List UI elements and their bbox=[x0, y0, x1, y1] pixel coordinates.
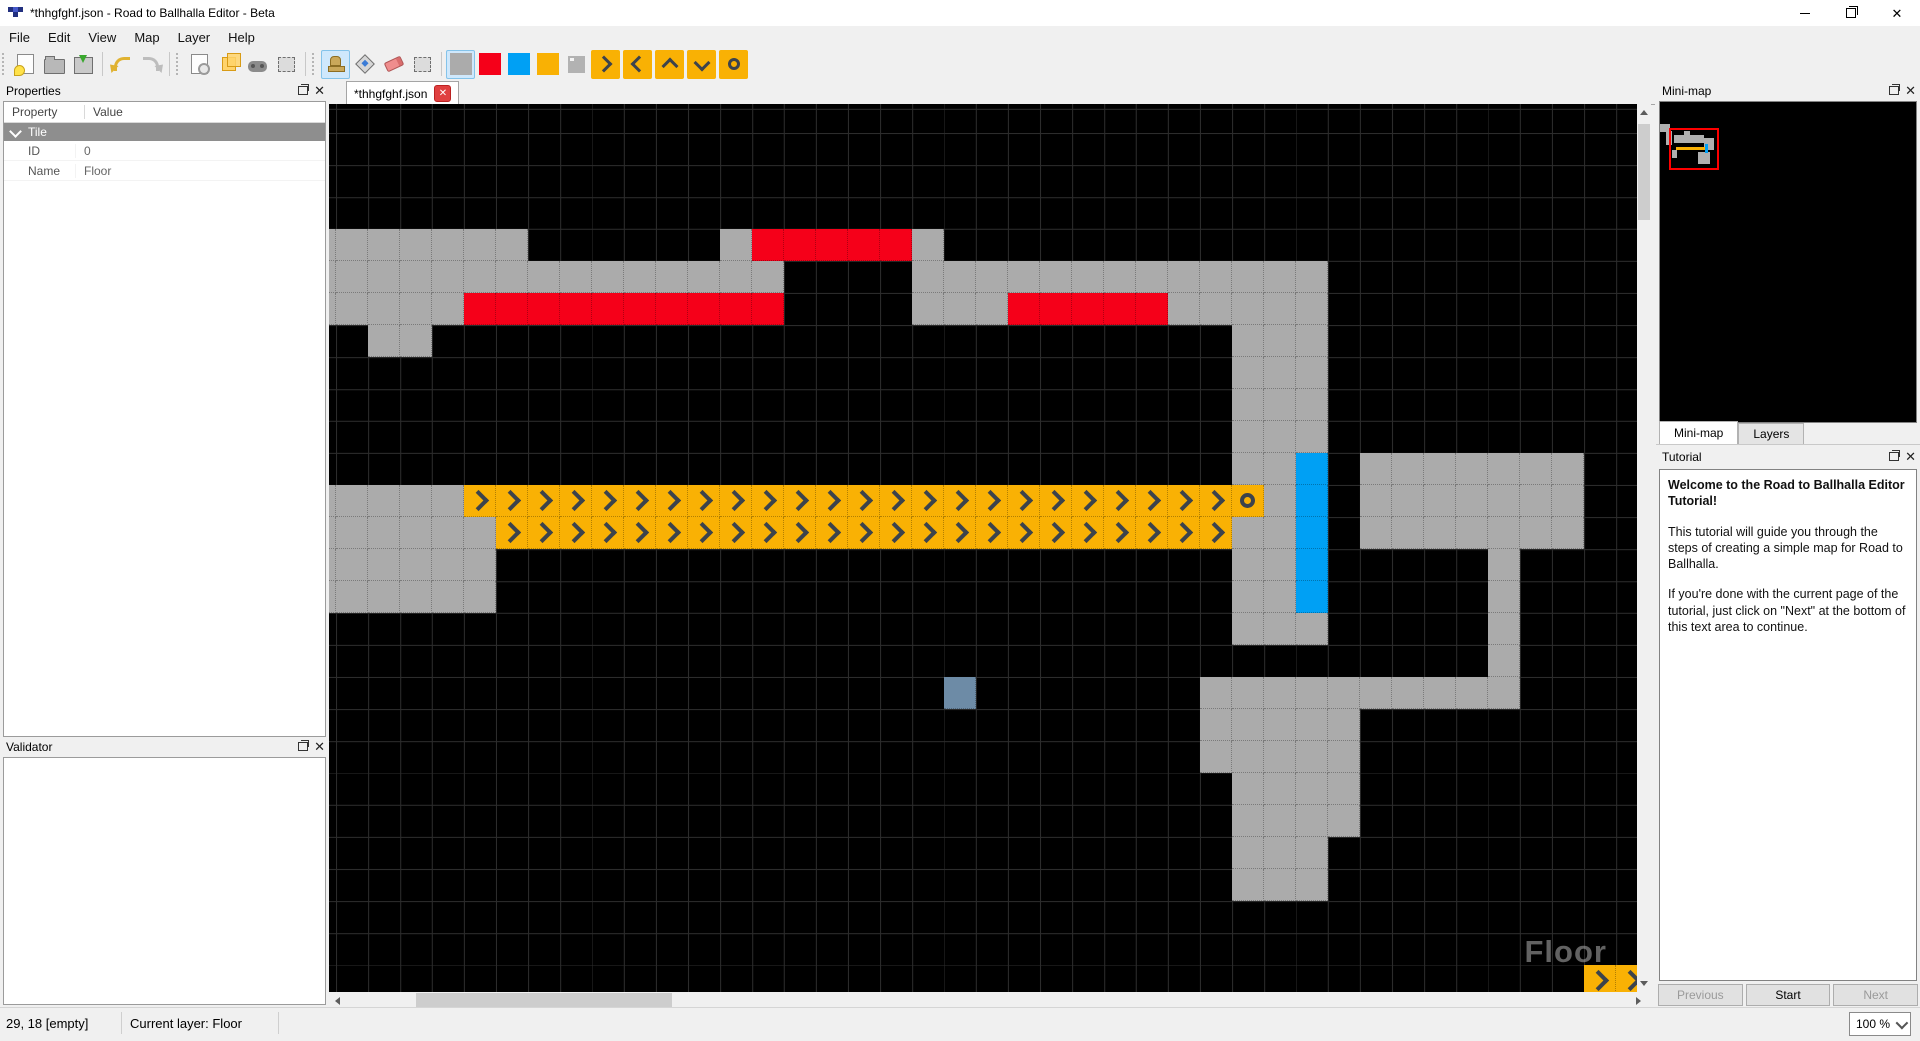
floor-tile[interactable] bbox=[368, 325, 400, 357]
floor-tile[interactable] bbox=[1488, 517, 1520, 549]
floor-tile[interactable] bbox=[944, 261, 976, 293]
arrow-right-tile[interactable] bbox=[592, 517, 624, 549]
floor-tile[interactable] bbox=[1296, 709, 1328, 741]
vertical-scroll-thumb[interactable] bbox=[1638, 124, 1650, 220]
hazard-tile[interactable] bbox=[688, 293, 720, 325]
floor-tile[interactable] bbox=[1296, 613, 1328, 645]
start-button[interactable]: Start bbox=[1746, 984, 1831, 1006]
arrow-left-tile[interactable] bbox=[623, 50, 652, 79]
floor-tile[interactable] bbox=[400, 261, 432, 293]
floor-tile[interactable] bbox=[329, 581, 336, 613]
floor-tile[interactable] bbox=[1264, 741, 1296, 773]
hazard-tile[interactable] bbox=[592, 293, 624, 325]
arrow-right-tile[interactable] bbox=[880, 517, 912, 549]
floor-tile[interactable] bbox=[1296, 421, 1328, 453]
floor-tile[interactable] bbox=[1232, 421, 1264, 453]
arrow-right-tile[interactable] bbox=[944, 517, 976, 549]
hazard-tile[interactable] bbox=[720, 293, 752, 325]
arrow-right-tile[interactable] bbox=[656, 517, 688, 549]
floor-tile[interactable] bbox=[336, 485, 368, 517]
floor-tile[interactable] bbox=[1296, 677, 1328, 709]
hazard-tile[interactable] bbox=[1104, 293, 1136, 325]
floor-tile[interactable] bbox=[1456, 677, 1488, 709]
floor-tile[interactable] bbox=[400, 293, 432, 325]
water-tile[interactable] bbox=[1296, 581, 1328, 613]
tutorial-text: Welcome to the Road to Ballhalla Editor … bbox=[1659, 469, 1917, 981]
arrow-down-tile[interactable] bbox=[687, 50, 716, 79]
floor-tile[interactable] bbox=[368, 229, 400, 261]
select-region-icon[interactable] bbox=[272, 50, 301, 79]
floor-tile[interactable] bbox=[912, 261, 944, 293]
floor-tile[interactable] bbox=[592, 261, 624, 293]
arrow-up-tile[interactable] bbox=[655, 50, 684, 79]
floor-tile[interactable] bbox=[976, 261, 1008, 293]
floor-tile[interactable] bbox=[1456, 517, 1488, 549]
floor-tile[interactable] bbox=[496, 229, 528, 261]
floor-tile[interactable] bbox=[1008, 261, 1040, 293]
circle-tile[interactable] bbox=[719, 50, 748, 79]
floor-tile[interactable] bbox=[464, 517, 496, 549]
floor-tile[interactable] bbox=[1232, 453, 1264, 485]
floor-tile[interactable] bbox=[1424, 677, 1456, 709]
arrow-right-tile[interactable] bbox=[1008, 517, 1040, 549]
tile-layers-icon[interactable] bbox=[214, 50, 243, 79]
floor-tile[interactable] bbox=[1392, 517, 1424, 549]
floor-tile[interactable] bbox=[329, 293, 336, 325]
hazard-tile[interactable] bbox=[1008, 293, 1040, 325]
floor-tile[interactable] bbox=[1232, 549, 1264, 581]
empty-tile-swatch[interactable] bbox=[562, 50, 591, 79]
floor-tile[interactable] bbox=[432, 549, 464, 581]
floor-tile[interactable] bbox=[1328, 709, 1360, 741]
floor-tile[interactable] bbox=[368, 293, 400, 325]
floor-tile[interactable] bbox=[1264, 613, 1296, 645]
arrow-right-tile[interactable] bbox=[1072, 517, 1104, 549]
floor-tile[interactable] bbox=[624, 261, 656, 293]
scroll-down-button[interactable] bbox=[1637, 975, 1651, 992]
arrow-right-tile[interactable] bbox=[976, 517, 1008, 549]
floor-tile[interactable] bbox=[1552, 485, 1584, 517]
floor-tile[interactable] bbox=[912, 229, 944, 261]
floor-tile[interactable] bbox=[1264, 677, 1296, 709]
floor-tile[interactable] bbox=[1296, 293, 1328, 325]
hazard-tile[interactable] bbox=[464, 293, 496, 325]
arrow-right-tile[interactable] bbox=[1136, 517, 1168, 549]
floor-tile[interactable] bbox=[336, 293, 368, 325]
floor-tile[interactable] bbox=[1296, 837, 1328, 869]
arrow-right-tile[interactable] bbox=[591, 50, 620, 79]
arrow-right-tile[interactable] bbox=[784, 517, 816, 549]
arrow-right-tile[interactable] bbox=[912, 485, 944, 517]
floor-tile[interactable] bbox=[400, 581, 432, 613]
arrow-right-tile[interactable] bbox=[624, 485, 656, 517]
floor-tile[interactable] bbox=[400, 229, 432, 261]
floor-tile[interactable] bbox=[1360, 453, 1392, 485]
floor-tile[interactable] bbox=[656, 261, 688, 293]
stamp-tool-icon[interactable] bbox=[321, 50, 350, 79]
arrow-right-tile[interactable] bbox=[1040, 485, 1072, 517]
map-canvas[interactable]: Floor bbox=[329, 104, 1637, 992]
arrow-right-tile[interactable] bbox=[816, 517, 848, 549]
floor-tile[interactable] bbox=[464, 229, 496, 261]
floor-tile[interactable] bbox=[1200, 741, 1232, 773]
arrow-right-tile[interactable] bbox=[912, 517, 944, 549]
float-panel-icon[interactable] bbox=[298, 86, 308, 95]
floor-tile[interactable] bbox=[1264, 389, 1296, 421]
arrow-right-tile[interactable] bbox=[592, 485, 624, 517]
floor-tile[interactable] bbox=[1264, 549, 1296, 581]
floor-tile[interactable] bbox=[752, 261, 784, 293]
floor-tile[interactable] bbox=[1520, 485, 1552, 517]
test-map-icon[interactable] bbox=[243, 50, 272, 79]
hazard-tile[interactable] bbox=[624, 293, 656, 325]
rect-select-icon[interactable] bbox=[408, 50, 437, 79]
next-button[interactable]: Next bbox=[1833, 984, 1918, 1006]
close-panel-icon[interactable]: ✕ bbox=[1905, 84, 1916, 97]
redo-icon[interactable] bbox=[136, 50, 165, 79]
hazard-tile[interactable] bbox=[656, 293, 688, 325]
toolbar-drag-handle[interactable] bbox=[2, 53, 9, 75]
floor-tile[interactable] bbox=[1488, 677, 1520, 709]
floor-tile[interactable] bbox=[1040, 261, 1072, 293]
floor-tile[interactable] bbox=[1200, 261, 1232, 293]
eraser-tool-icon[interactable] bbox=[379, 50, 408, 79]
floor-tile[interactable] bbox=[1264, 709, 1296, 741]
toolbar-drag-handle[interactable] bbox=[312, 53, 319, 75]
floor-tile[interactable] bbox=[368, 549, 400, 581]
floor-tile[interactable] bbox=[432, 485, 464, 517]
arrow-right-tile[interactable] bbox=[1136, 485, 1168, 517]
floor-tile[interactable] bbox=[1424, 517, 1456, 549]
floor-tile[interactable] bbox=[1232, 357, 1264, 389]
tab-minimap[interactable]: Mini-map bbox=[1659, 421, 1738, 444]
floor-tile[interactable] bbox=[1232, 325, 1264, 357]
floor-tile[interactable] bbox=[1232, 837, 1264, 869]
property-value[interactable]: Floor bbox=[76, 164, 111, 178]
hazard-tile[interactable] bbox=[880, 229, 912, 261]
floor-tile[interactable] bbox=[1328, 805, 1360, 837]
floor-tile[interactable] bbox=[329, 517, 336, 549]
toolbar-drag-handle[interactable] bbox=[176, 53, 183, 75]
goal-circle-tile[interactable] bbox=[1232, 485, 1264, 517]
property-group-row[interactable]: Tile bbox=[4, 123, 325, 141]
arrow-right-tile[interactable] bbox=[1104, 485, 1136, 517]
floor-tile[interactable] bbox=[336, 261, 368, 293]
floor-tile[interactable] bbox=[1264, 837, 1296, 869]
arrow-right-tile[interactable] bbox=[1616, 965, 1637, 992]
floor-tile[interactable] bbox=[368, 485, 400, 517]
floor-tile[interactable] bbox=[432, 229, 464, 261]
save-file-icon[interactable] bbox=[69, 50, 98, 79]
arrow-right-tile[interactable] bbox=[624, 517, 656, 549]
floor-tile[interactable] bbox=[1456, 485, 1488, 517]
restore-button[interactable] bbox=[1828, 0, 1874, 26]
floor-tile[interactable] bbox=[432, 261, 464, 293]
floor-tile[interactable] bbox=[1488, 453, 1520, 485]
hazard-tile[interactable] bbox=[848, 229, 880, 261]
floor-tile[interactable] bbox=[464, 581, 496, 613]
menu-edit[interactable]: Edit bbox=[39, 27, 79, 48]
menu-map[interactable]: Map bbox=[125, 27, 168, 48]
hazard-tile[interactable] bbox=[528, 293, 560, 325]
floor-tile[interactable] bbox=[368, 517, 400, 549]
menu-help[interactable]: Help bbox=[219, 27, 264, 48]
close-panel-icon[interactable]: ✕ bbox=[1905, 450, 1916, 463]
floor-tile[interactable] bbox=[329, 261, 336, 293]
floor-tile[interactable] bbox=[1232, 517, 1264, 549]
floor-tile[interactable] bbox=[432, 581, 464, 613]
tab-layers[interactable]: Layers bbox=[1738, 423, 1804, 444]
floor-tile[interactable] bbox=[329, 485, 336, 517]
arrow-right-tile[interactable] bbox=[1104, 517, 1136, 549]
floor-tile[interactable] bbox=[1168, 293, 1200, 325]
floor-tile[interactable] bbox=[1264, 261, 1296, 293]
arrow-right-tile[interactable] bbox=[528, 517, 560, 549]
arrow-right-tile[interactable] bbox=[656, 485, 688, 517]
floor-tile[interactable] bbox=[1424, 453, 1456, 485]
floor-tile[interactable] bbox=[1232, 869, 1264, 901]
floor-tile[interactable] bbox=[1264, 357, 1296, 389]
floor-tile[interactable] bbox=[1360, 517, 1392, 549]
arrow-right-tile[interactable] bbox=[944, 485, 976, 517]
floor-tile[interactable] bbox=[1296, 869, 1328, 901]
floor-tile[interactable] bbox=[1232, 773, 1264, 805]
floor-tile[interactable] bbox=[720, 261, 752, 293]
arrow-right-tile[interactable] bbox=[1168, 485, 1200, 517]
floor-tile[interactable] bbox=[1264, 869, 1296, 901]
floor-tile[interactable] bbox=[1328, 677, 1360, 709]
floor-tile[interactable] bbox=[1264, 805, 1296, 837]
fill-tool-icon[interactable] bbox=[350, 50, 379, 79]
floor-tile[interactable] bbox=[329, 229, 336, 261]
floor-tile[interactable] bbox=[1232, 389, 1264, 421]
floor-tile[interactable] bbox=[1520, 517, 1552, 549]
menu-file[interactable]: File bbox=[0, 27, 39, 48]
hazard-tile[interactable] bbox=[784, 229, 816, 261]
floor-tile[interactable] bbox=[1168, 261, 1200, 293]
floor-tile[interactable] bbox=[976, 293, 1008, 325]
gray-tile-swatch[interactable] bbox=[446, 50, 475, 79]
arrow-right-tile[interactable] bbox=[528, 485, 560, 517]
arrow-right-tile[interactable] bbox=[688, 485, 720, 517]
floor-tile[interactable] bbox=[1360, 677, 1392, 709]
floor-tile[interactable] bbox=[1264, 517, 1296, 549]
floor-tile[interactable] bbox=[1296, 389, 1328, 421]
property-row[interactable]: NameFloor bbox=[4, 161, 325, 181]
floor-tile[interactable] bbox=[368, 581, 400, 613]
floor-tile[interactable] bbox=[1392, 677, 1424, 709]
floor-tile[interactable] bbox=[400, 517, 432, 549]
floor-tile[interactable] bbox=[1232, 805, 1264, 837]
tab-map-file[interactable]: *thhgfghf.json ✕ bbox=[346, 81, 459, 105]
floor-tile[interactable] bbox=[329, 549, 336, 581]
vertical-scrollbar[interactable] bbox=[1637, 104, 1651, 992]
floor-tile[interactable] bbox=[1392, 485, 1424, 517]
arrow-right-tile[interactable] bbox=[496, 485, 528, 517]
floor-tile[interactable] bbox=[1488, 645, 1520, 677]
blue-tile-swatch[interactable] bbox=[504, 50, 533, 79]
arrow-right-glyph bbox=[1043, 490, 1064, 511]
float-panel-icon[interactable] bbox=[1889, 86, 1899, 95]
floor-tile[interactable] bbox=[912, 293, 944, 325]
water-tile[interactable] bbox=[1296, 453, 1328, 485]
arrow-right-tile[interactable] bbox=[688, 517, 720, 549]
validator-panel-header: Validator ✕ bbox=[0, 736, 329, 757]
arrow-right-tile[interactable] bbox=[720, 485, 752, 517]
arrow-right-tile[interactable] bbox=[1200, 485, 1232, 517]
arrow-right-tile[interactable] bbox=[1072, 485, 1104, 517]
floor-tile[interactable] bbox=[400, 485, 432, 517]
floor-tile[interactable] bbox=[1456, 453, 1488, 485]
arrow-right-tile[interactable] bbox=[784, 485, 816, 517]
floor-tile[interactable] bbox=[1488, 549, 1520, 581]
floor-tile[interactable] bbox=[720, 229, 752, 261]
arrow-right-tile[interactable] bbox=[752, 517, 784, 549]
minimize-button[interactable] bbox=[1782, 0, 1828, 26]
floor-tile[interactable] bbox=[1264, 485, 1296, 517]
arrow-right-tile[interactable] bbox=[848, 517, 880, 549]
floor-tile[interactable] bbox=[1296, 773, 1328, 805]
arrow-right-tile[interactable] bbox=[880, 485, 912, 517]
floor-tile[interactable] bbox=[1264, 325, 1296, 357]
arrow-right-tile[interactable] bbox=[496, 517, 528, 549]
floor-tile[interactable] bbox=[1488, 613, 1520, 645]
floor-tile[interactable] bbox=[336, 517, 368, 549]
tab-close-icon[interactable]: ✕ bbox=[434, 85, 451, 102]
floor-tile[interactable] bbox=[432, 517, 464, 549]
close-panel-icon[interactable]: ✕ bbox=[314, 740, 325, 753]
minimap-view[interactable] bbox=[1659, 101, 1917, 423]
hazard-tile[interactable] bbox=[752, 293, 784, 325]
arrow-right-tile[interactable] bbox=[1040, 517, 1072, 549]
red-tile-swatch[interactable] bbox=[475, 50, 504, 79]
floor-tile[interactable] bbox=[336, 549, 368, 581]
steel-tile[interactable] bbox=[944, 677, 976, 709]
floor-tile[interactable] bbox=[1136, 261, 1168, 293]
arrow-right-tile[interactable] bbox=[1200, 517, 1232, 549]
property-row[interactable]: ID0 bbox=[4, 141, 325, 161]
floor-tile[interactable] bbox=[1200, 677, 1232, 709]
floor-tile[interactable] bbox=[336, 229, 368, 261]
horizontal-scroll-thumb[interactable] bbox=[416, 993, 672, 1008]
menu-view[interactable]: View bbox=[79, 27, 125, 48]
open-file-icon[interactable] bbox=[40, 50, 69, 79]
floor-tile[interactable] bbox=[1328, 773, 1360, 805]
floor-tile[interactable] bbox=[688, 261, 720, 293]
arrow-right-tile[interactable] bbox=[816, 485, 848, 517]
floor-tile[interactable] bbox=[1264, 773, 1296, 805]
floor-tile[interactable] bbox=[1232, 613, 1264, 645]
floor-tile[interactable] bbox=[1232, 581, 1264, 613]
floor-tile[interactable] bbox=[1200, 293, 1232, 325]
floor-tile[interactable] bbox=[1424, 485, 1456, 517]
orange-tile-swatch[interactable] bbox=[533, 50, 562, 79]
floor-tile[interactable] bbox=[1552, 517, 1584, 549]
floor-tile[interactable] bbox=[1488, 485, 1520, 517]
floor-tile[interactable] bbox=[1072, 261, 1104, 293]
new-file-icon[interactable] bbox=[11, 50, 40, 79]
floor-tile[interactable] bbox=[464, 549, 496, 581]
hazard-tile[interactable] bbox=[816, 229, 848, 261]
property-value[interactable]: 0 bbox=[76, 144, 91, 158]
arrow-right-tile[interactable] bbox=[976, 485, 1008, 517]
floor-tile[interactable] bbox=[336, 581, 368, 613]
floor-tile[interactable] bbox=[1296, 261, 1328, 293]
floor-tile[interactable] bbox=[1296, 805, 1328, 837]
hazard-tile[interactable] bbox=[1136, 293, 1168, 325]
arrow-right-tile[interactable] bbox=[560, 485, 592, 517]
arrow-right-tile[interactable] bbox=[560, 517, 592, 549]
arrow-right-tile[interactable] bbox=[1008, 485, 1040, 517]
hazard-tile[interactable] bbox=[752, 229, 784, 261]
floor-tile[interactable] bbox=[1392, 453, 1424, 485]
float-panel-icon[interactable] bbox=[298, 742, 308, 751]
floor-tile[interactable] bbox=[1488, 581, 1520, 613]
close-panel-icon[interactable]: ✕ bbox=[314, 84, 325, 97]
floor-tile[interactable] bbox=[496, 261, 528, 293]
floor-tile[interactable] bbox=[1296, 741, 1328, 773]
floor-tile[interactable] bbox=[1264, 581, 1296, 613]
water-tile[interactable] bbox=[1296, 517, 1328, 549]
floor-tile[interactable] bbox=[1232, 741, 1264, 773]
previous-button[interactable]: Previous bbox=[1658, 984, 1743, 1006]
floor-tile[interactable] bbox=[560, 261, 592, 293]
floor-tile[interactable] bbox=[1232, 709, 1264, 741]
floor-tile[interactable] bbox=[1264, 293, 1296, 325]
hazard-tile[interactable] bbox=[1072, 293, 1104, 325]
floor-tile[interactable] bbox=[1520, 453, 1552, 485]
floor-tile[interactable] bbox=[1360, 485, 1392, 517]
arrow-right-tile[interactable] bbox=[1168, 517, 1200, 549]
arrow-right-tile[interactable] bbox=[464, 485, 496, 517]
water-tile[interactable] bbox=[1296, 549, 1328, 581]
floor-tile[interactable] bbox=[1552, 453, 1584, 485]
undo-icon[interactable] bbox=[107, 50, 136, 79]
floor-tile[interactable] bbox=[1264, 421, 1296, 453]
floor-tile[interactable] bbox=[1200, 709, 1232, 741]
floor-tile[interactable] bbox=[432, 293, 464, 325]
floor-tile[interactable] bbox=[400, 549, 432, 581]
floor-tile[interactable] bbox=[1232, 293, 1264, 325]
floor-tile[interactable] bbox=[1296, 357, 1328, 389]
arrow-right-tile[interactable] bbox=[752, 485, 784, 517]
close-button[interactable]: ✕ bbox=[1874, 0, 1920, 26]
floor-tile[interactable] bbox=[944, 293, 976, 325]
arrow-right-tile[interactable] bbox=[720, 517, 752, 549]
hazard-tile[interactable] bbox=[496, 293, 528, 325]
floor-tile[interactable] bbox=[368, 261, 400, 293]
hazard-tile[interactable] bbox=[1040, 293, 1072, 325]
floor-tile[interactable] bbox=[1104, 261, 1136, 293]
float-panel-icon[interactable] bbox=[1889, 452, 1899, 461]
scroll-up-button[interactable] bbox=[1637, 104, 1651, 121]
floor-tile[interactable] bbox=[1232, 261, 1264, 293]
water-tile[interactable] bbox=[1296, 485, 1328, 517]
floor-tile[interactable] bbox=[528, 261, 560, 293]
arrow-right-tile[interactable] bbox=[848, 485, 880, 517]
floor-tile[interactable] bbox=[1264, 453, 1296, 485]
floor-tile[interactable] bbox=[464, 261, 496, 293]
floor-tile[interactable] bbox=[1328, 741, 1360, 773]
minimap-viewport-rect[interactable] bbox=[1669, 128, 1719, 170]
floor-tile[interactable] bbox=[1232, 677, 1264, 709]
hazard-tile[interactable] bbox=[560, 293, 592, 325]
floor-tile[interactable] bbox=[400, 325, 432, 357]
validate-map-icon[interactable] bbox=[185, 50, 214, 79]
zoom-select[interactable]: 100 % bbox=[1849, 1012, 1911, 1036]
floor-tile[interactable] bbox=[1296, 325, 1328, 357]
menu-layer[interactable]: Layer bbox=[169, 27, 220, 48]
